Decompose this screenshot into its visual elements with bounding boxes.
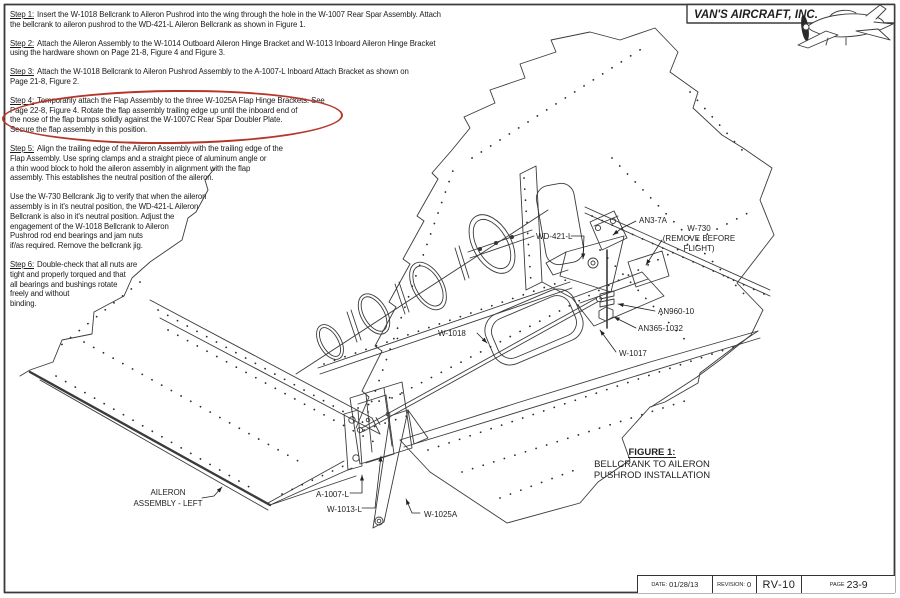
callout-an37a: AN3-7A — [639, 216, 668, 225]
figure-title: FIGURE 1: — [629, 447, 676, 458]
revision-cell: REVISION: 0 — [713, 576, 757, 593]
company-name: VAN'S AIRCRAFT, INC. — [694, 9, 818, 21]
figure-caption-line1: BELLCRANK TO AILERON — [594, 459, 710, 470]
step-3: Step 3:Attach the W-1018 Bellcrank to Ai… — [10, 67, 441, 87]
callout-w1013: W-1013-L — [327, 505, 363, 514]
callout-w730-line1: W-730 — [687, 224, 711, 233]
aileron-leading-edge — [30, 372, 270, 505]
figure-caption: FIGURE 1: BELLCRANK TO AILERON PUSHROD I… — [594, 447, 710, 481]
callout-w730-line2: (REMOVE BEFORE — [663, 234, 735, 243]
step-6: Step 6:Double-check that all nuts are ti… — [10, 260, 441, 309]
step-4: Step 4:Temporarily attach the Flap Assem… — [10, 96, 441, 135]
instructions: Step 1:Insert the W-1018 Bellcrank to Ai… — [10, 10, 441, 318]
callout-aileron-line1: AILERON — [150, 488, 185, 497]
date-value: 01/28/13 — [669, 580, 698, 589]
title-block: DATE: 01/28/13 REVISION: 0 RV-10 PAGE 23… — [637, 575, 895, 593]
callout-a1007: A-1007-L — [316, 490, 349, 499]
access-hole — [479, 283, 588, 370]
figure-caption-line2: PUSHROD INSTALLATION — [594, 470, 710, 481]
date-cell: DATE: 01/28/13 — [638, 576, 713, 593]
step-1: Step 1:Insert the W-1018 Bellcrank to Ai… — [10, 10, 441, 30]
callout-w1025: W-1025A — [424, 510, 458, 519]
callout-an960: AN960-10 — [658, 307, 695, 316]
page-cell: PAGE 23-9 — [802, 576, 895, 593]
callout-w1017: W-1017 — [619, 349, 647, 358]
step-label: Step 1: — [10, 10, 34, 19]
jig-note: Use the W-730 Bellcrank Jig to verify th… — [10, 192, 441, 251]
callout-wd421: WD-421-L — [536, 232, 573, 241]
callout-w730-line3: FLIGHT) — [683, 244, 714, 253]
step-label: Step 6: — [10, 260, 34, 269]
page-number: 23-9 — [847, 579, 868, 591]
model-cell: RV-10 — [757, 576, 803, 593]
date-label: DATE: — [651, 582, 667, 588]
step-label: Step 2: — [10, 39, 34, 48]
step-label: Step 3: — [10, 67, 34, 76]
manual-page: { "header": { "company": "VAN'S AIRCRAFT… — [0, 0, 900, 598]
callout-w1018: W-1018 — [438, 329, 466, 338]
bottom-skin — [400, 331, 760, 523]
step-2: Step 2:Attach the Aileron Assembly to th… — [10, 39, 441, 59]
callout-an365: AN365-1032 — [638, 324, 683, 333]
page-label: PAGE — [830, 582, 845, 588]
step-5: Step 5:Align the trailing edge of the Ai… — [10, 144, 441, 183]
revision-value: 0 — [747, 580, 751, 589]
step-label: Step 4: — [10, 96, 34, 105]
revision-label: REVISION: — [717, 582, 745, 588]
step-label: Step 5: — [10, 144, 34, 153]
callout-aileron-line2: ASSEMBLY - LEFT — [133, 499, 202, 508]
